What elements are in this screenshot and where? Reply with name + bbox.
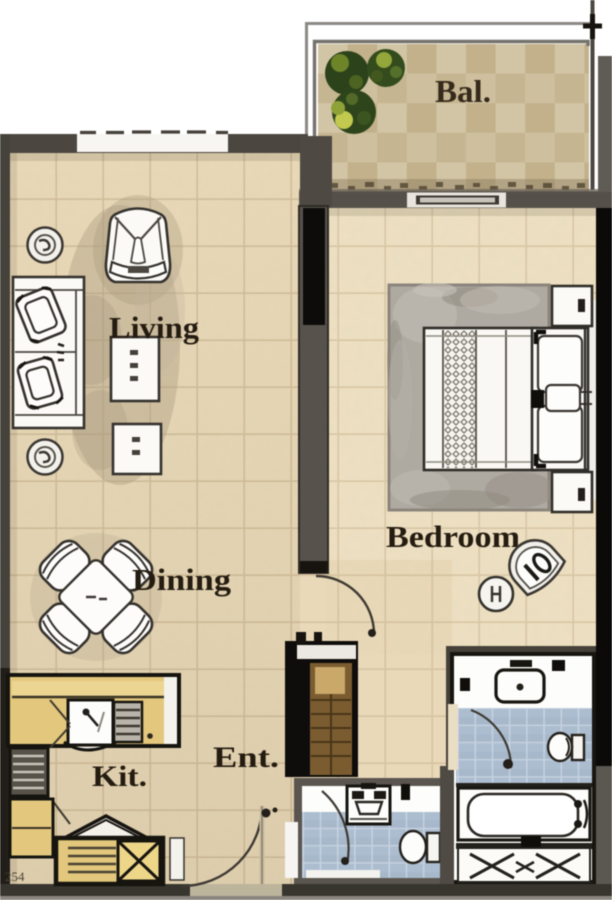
svg-text:Ent.: Ent. <box>213 741 279 774</box>
svg-text:Bedroom: Bedroom <box>386 519 520 554</box>
svg-text:Living: Living <box>109 310 200 345</box>
svg-text:Kit.: Kit. <box>92 760 147 793</box>
svg-text:254: 254 <box>5 869 25 884</box>
svg-text:Dining: Dining <box>132 562 232 597</box>
svg-text:Bal.: Bal. <box>435 73 491 109</box>
